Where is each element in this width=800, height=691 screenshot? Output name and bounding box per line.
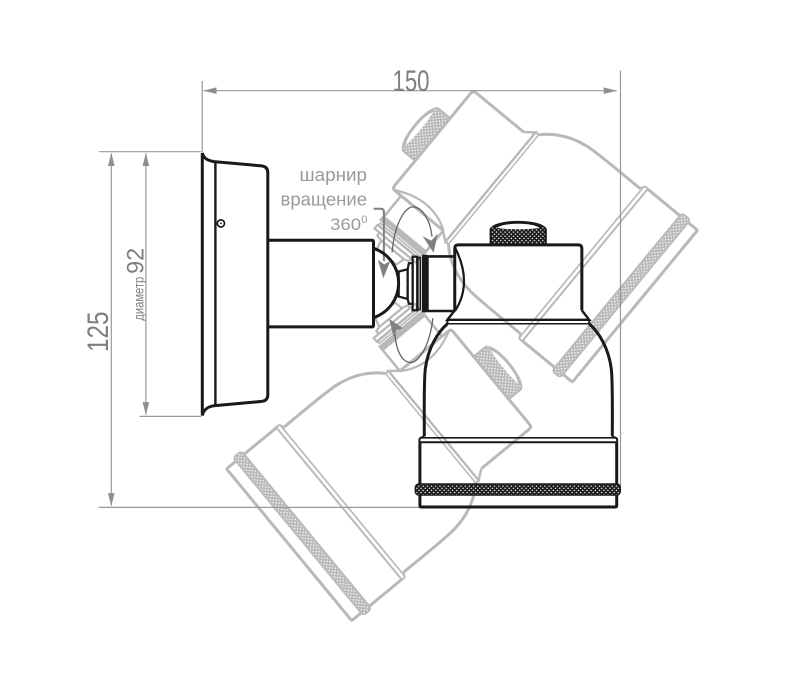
svg-text:диаметр: диаметр [131,277,147,321]
svg-text:150: 150 [393,65,430,98]
svg-text:360: 360 [330,216,361,234]
svg-text:шарнир: шарнир [300,165,368,185]
svg-text:вращение: вращение [281,190,368,210]
svg-text:0: 0 [361,214,367,226]
svg-text:125: 125 [82,312,115,353]
svg-text:92: 92 [122,248,149,274]
